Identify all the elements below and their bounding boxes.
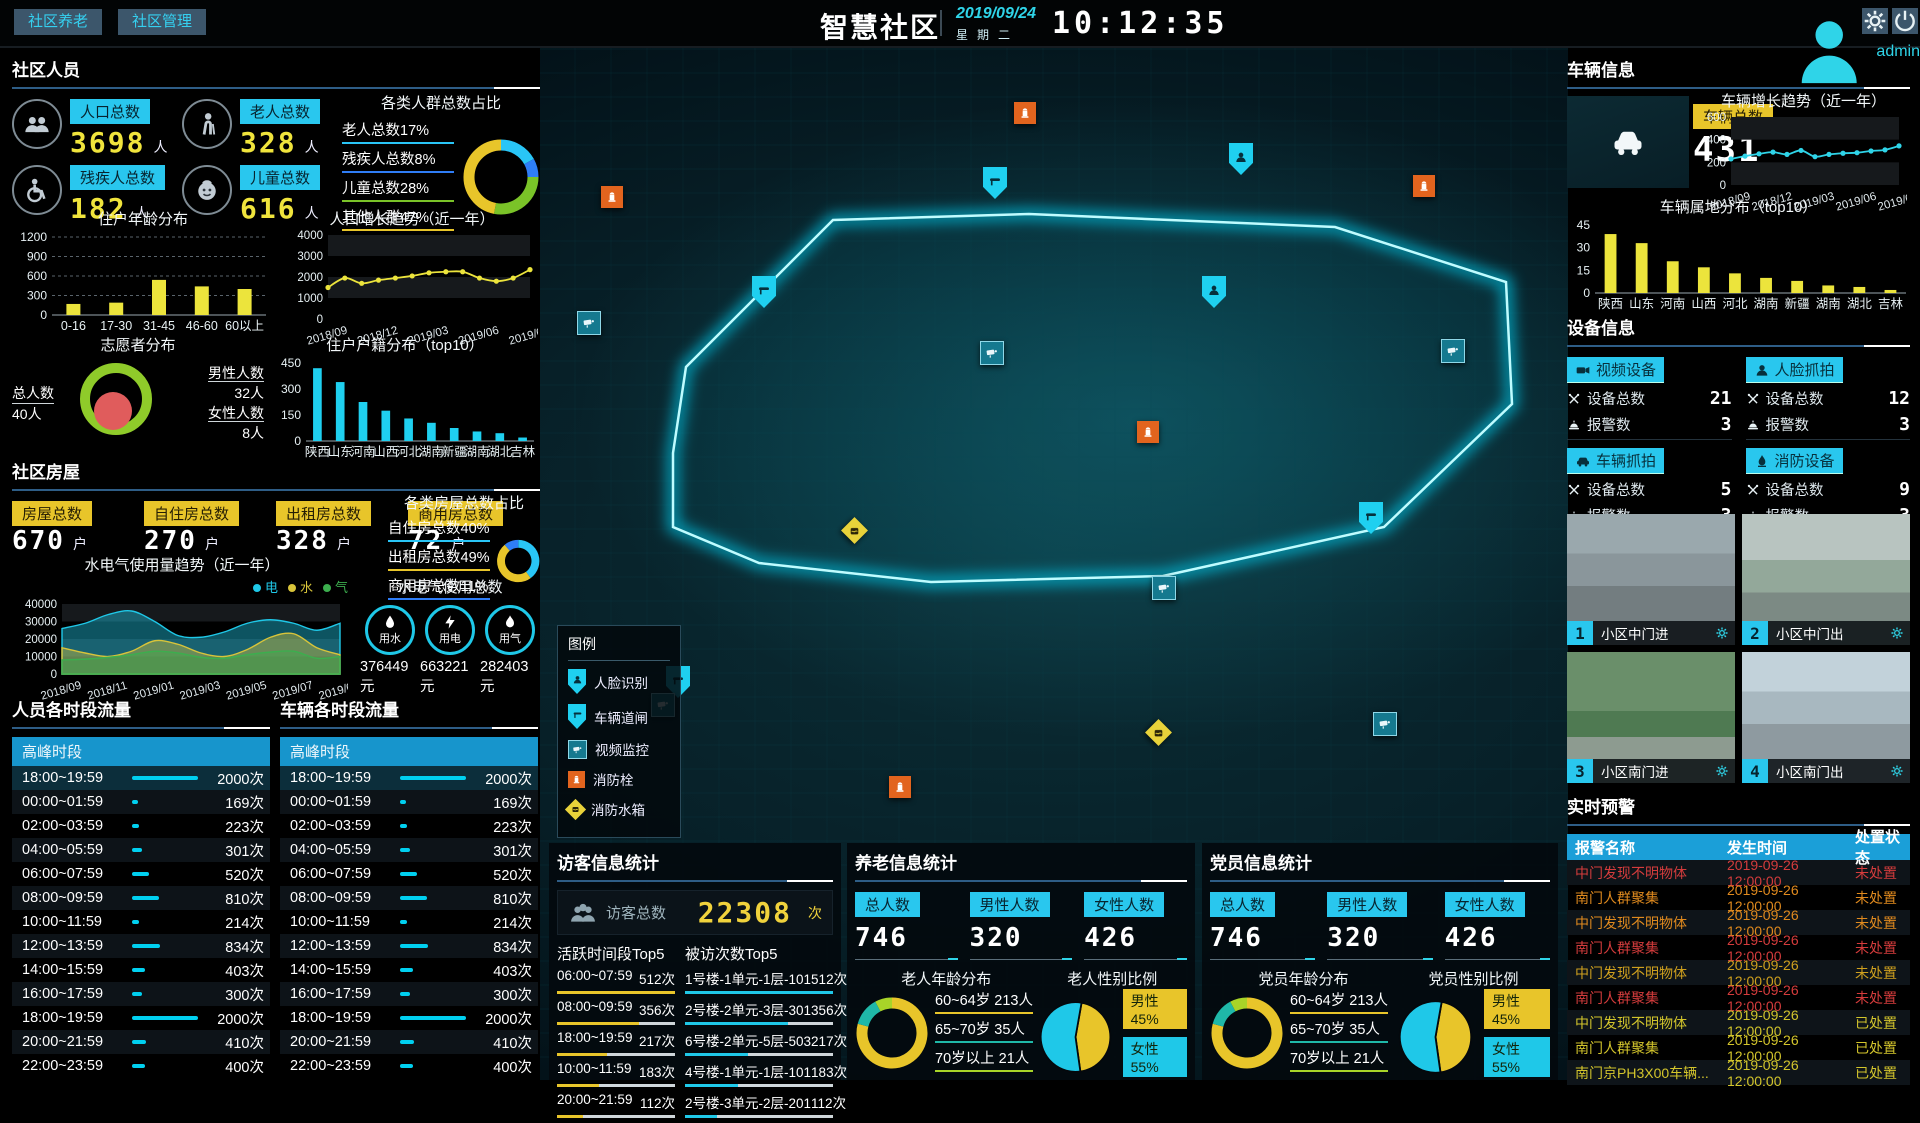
panel-title: 车辆各时段流量 (280, 696, 538, 729)
flow-table: 18:00~19:592000次00:00~01:59169次02:00~03:… (280, 766, 538, 1078)
svg-text:河北: 河北 (1722, 297, 1748, 311)
settings-button[interactable] (1862, 8, 1888, 34)
tab-community-manage[interactable]: 社区管理 (118, 9, 206, 35)
donut-label: 自住房总数40% (388, 517, 490, 542)
flow-row: 00:00~01:59169次 (280, 790, 538, 814)
video-icon (1575, 362, 1591, 378)
svg-text:河南: 河南 (350, 444, 375, 459)
svg-text:新疆: 新疆 (442, 444, 467, 459)
wrench-icon (1567, 483, 1581, 497)
legend-item-gate: 车辆道闸 (568, 704, 670, 729)
legend-item-face: 人脸识别 (568, 669, 670, 694)
svg-text:900: 900 (27, 250, 47, 264)
panel-title: 养老信息统计 (855, 849, 1187, 882)
stat-label: 自住房总数 (144, 501, 239, 526)
flame2-icon (1754, 453, 1770, 469)
chart-title: 老人性别比例 (1038, 968, 1187, 989)
top5-item: 6号楼-2单元-5层-503217次 (685, 1030, 833, 1056)
chart-title: 党员年龄分布 (1210, 968, 1397, 989)
camera-bar: 3 小区南门进 (1567, 759, 1735, 783)
legend-series-电: 电 (253, 577, 278, 596)
svg-text:0-16: 0-16 (61, 319, 86, 333)
map-marker-video[interactable] (577, 311, 601, 335)
panel-title: 访客信息统计 (557, 849, 833, 882)
household-origin-chart: 0150300450陕西山东河南山西河北湖南新疆湖南湖北吉林 (270, 355, 538, 461)
svg-text:60以上: 60以上 (225, 319, 264, 333)
vehicle-origin-chart: 0153045陕西山东河南山西河北湖南新疆湖南湖北吉林 (1567, 217, 1910, 313)
flow-row: 20:00~21:59410次 (12, 1030, 270, 1054)
page-title: 智慧社区 (820, 6, 940, 46)
age-distribution-chart: 030060090012000-1617-3031-4546-6060以上 (12, 229, 270, 335)
tank-icon (565, 798, 586, 819)
map-marker-video[interactable] (1152, 576, 1176, 600)
camera-bar: 2 小区中门出 (1742, 621, 1910, 645)
svg-text:0: 0 (317, 314, 323, 326)
stat-label: 人口总数 (70, 99, 150, 124)
flow-row: 02:00~03:59223次 (280, 814, 538, 838)
elder-gender-pie (1038, 995, 1113, 1079)
flow-row: 00:00~01:59169次 (12, 790, 270, 814)
flow-row: 22:00~23:59400次 (280, 1054, 538, 1078)
svg-text:15: 15 (1577, 263, 1591, 277)
svg-text:河南: 河南 (1660, 296, 1685, 311)
stat-label: 男性人数 (970, 892, 1050, 917)
panel-title: 党员信息统计 (1210, 849, 1550, 882)
utility-value: 282403元 (480, 659, 540, 696)
flow-row: 18:00~19:592000次 (12, 1006, 270, 1030)
visitors-icon (568, 900, 598, 926)
wrench-icon (1746, 392, 1760, 406)
house-stat: 自住房总数 270户 (144, 501, 264, 556)
flame-icon: 用气 (485, 605, 535, 655)
svg-text:0: 0 (51, 669, 57, 681)
camera-number: 3 (1567, 759, 1593, 783)
stat-label: 女性人数 (1084, 892, 1164, 917)
faceb-icon (1754, 362, 1770, 378)
elder-age-donut (855, 996, 929, 1070)
flow-row: 04:00~05:59301次 (280, 838, 538, 862)
map-marker-hydrant[interactable] (601, 186, 623, 208)
flow-row: 18:00~19:592000次 (12, 766, 270, 790)
stat-label: 儿童总数 (240, 165, 320, 190)
donut-label: 60~64岁 213人 (935, 989, 1033, 1014)
flow-row: 22:00~23:59400次 (12, 1054, 270, 1078)
camera-feed-3[interactable]: 3 小区南门进 (1567, 652, 1735, 783)
svg-text:吉林: 吉林 (1878, 297, 1904, 311)
map-marker-video[interactable] (1373, 712, 1397, 736)
utility-total-water: 用水 376449元 (360, 605, 420, 696)
flow-row: 10:00~11:59214次 (280, 910, 538, 934)
svg-text:4000: 4000 (297, 230, 323, 242)
svg-text:450: 450 (281, 356, 301, 370)
panel-device-info: 设备信息 视频设备 设备总数21 报警数3人脸抓拍 设备总数12 报警数3车辆抓… (1567, 314, 1910, 531)
visitor-total-value: 22308 (698, 896, 792, 929)
chart-title: 住户户籍分布（top10） (270, 334, 540, 355)
gear-icon (1862, 8, 1888, 34)
donut-label: 70岁以上 21人 (935, 1047, 1033, 1072)
people-stat-elder: 老人总数 328人 (182, 99, 342, 159)
logout-button[interactable] (1892, 8, 1918, 34)
map-marker-hydrant[interactable] (1014, 102, 1036, 124)
stat-label: 总人数 (1210, 892, 1275, 917)
device-label: 人脸抓拍 (1746, 357, 1843, 383)
svg-text:1200: 1200 (20, 230, 47, 244)
camera-bar: 1 小区中门进 (1567, 621, 1735, 645)
svg-text:湖北: 湖北 (1847, 296, 1873, 311)
legend-item-tank: 消防水箱 (568, 799, 670, 819)
visitor-total: 访客总数 22308 次 (557, 890, 833, 935)
camera-label: 小区南门进 (1601, 761, 1715, 781)
header-divider (940, 10, 942, 36)
stat-label: 女性人数 (1445, 892, 1525, 917)
party-age-donut (1210, 996, 1284, 1070)
svg-text:30000: 30000 (25, 617, 57, 629)
volunteer-total-label: 总人数 (12, 383, 54, 404)
top5-title: 被访次数Top5 (685, 943, 833, 964)
top5-item: 2号楼-2单元-3层-301356次 (685, 999, 833, 1025)
camera-label: 小区南门出 (1776, 761, 1890, 781)
camera-number: 1 (1567, 621, 1593, 645)
people-stats: 人口总数 3698人 老人总数 328人 残疾人总数 182人 儿童总数 616… (12, 99, 342, 225)
top-header: 社区养老 社区管理 智慧社区 2019/09/24 星期二 10:12:35 a… (0, 0, 1920, 48)
panel-vehicle-flow: 车辆各时段流量 高峰时段 18:00~19:592000次00:00~01:59… (280, 696, 538, 1078)
stat-cell: 总人数746 (1210, 892, 1315, 960)
svg-text:300: 300 (27, 289, 47, 303)
flow-row: 04:00~05:59301次 (12, 838, 270, 862)
panel-title: 社区人员 (12, 56, 540, 89)
svg-text:湖南: 湖南 (1754, 296, 1779, 311)
utility-value: 663221元 (420, 659, 480, 696)
water-icon: 用水 (365, 605, 415, 655)
svg-text:3000: 3000 (297, 251, 323, 263)
donut-label: 70岁以上 21人 (1290, 1047, 1388, 1072)
panel-vehicle-info: 车辆信息 车辆总数 431 车辆增长趋势（近一年） 02004006002018… (1567, 56, 1910, 308)
visitor-total-label: 访客总数 (606, 902, 690, 923)
device-card-faceb: 人脸抓拍 设备总数12 报警数3 (1746, 357, 1911, 440)
chart-title: 车辆属地分布（top10） (1567, 196, 1910, 217)
panel-elderly-stats: 养老信息统计 总人数746男性人数320女性人数426 老人年龄分布 60~64… (847, 843, 1195, 1080)
people-stat-crowd: 人口总数 3698人 (12, 99, 172, 159)
map-marker-hydrant[interactable] (1137, 421, 1159, 443)
svg-text:45: 45 (1577, 218, 1591, 232)
map-marker-video[interactable] (1441, 339, 1465, 363)
svg-text:31-45: 31-45 (143, 319, 175, 333)
svg-text:40000: 40000 (25, 599, 57, 611)
utility-total-flame: 用气 282403元 (480, 605, 540, 696)
gate-icon (568, 704, 586, 729)
svg-text:1000: 1000 (297, 293, 323, 305)
party-gender-pie (1397, 995, 1474, 1079)
chart-title: 党员性别比例 (1397, 968, 1550, 989)
panel-community-people: 社区人员 人口总数 3698人 老人总数 328人 残疾人总数 182人 儿童总… (12, 56, 540, 225)
vehicle-total-card (1567, 96, 1689, 188)
map-marker-video[interactable] (980, 341, 1004, 365)
device-label: 消防设备 (1746, 448, 1843, 474)
gender-badge: 女性55% (1123, 1037, 1187, 1085)
alerts-table: 报警名称发生时间处置状态 中门发现不明物体2019-09-26 12:00:00… (1567, 834, 1910, 1085)
svg-text:400: 400 (1707, 135, 1726, 147)
utilities-trend-chart: 0100002000030000400002018/092018/112019/… (12, 598, 348, 700)
alert-row[interactable]: 南门京PH3X00车辆...2019-09-26 12:00:00已处置 (1567, 1060, 1910, 1085)
panel-community-house: 社区房屋 房屋总数 670户自住房总数 270户出租房总数 328户商用房总数 … (12, 458, 540, 556)
svg-text:0: 0 (294, 434, 301, 448)
top5-item: 10:00~11:59183次 (557, 1061, 675, 1087)
map-legend: 图例 人脸识别车辆道闸视频监控消防栓消防水箱 (557, 625, 681, 838)
svg-text:湖北: 湖北 (487, 444, 513, 459)
alarm-icon (1746, 418, 1760, 432)
top5-item: 08:00~09:59356次 (557, 999, 675, 1025)
camera-number: 4 (1742, 759, 1768, 783)
utility-total-bolt: 用电 663221元 (420, 605, 480, 696)
legend-title: 图例 (568, 634, 670, 661)
camera-bar: 4 小区南门出 (1742, 759, 1910, 783)
legend-series-水: 水 (288, 577, 313, 596)
flow-table: 18:00~19:592000次00:00~01:59169次02:00~03:… (12, 766, 270, 1078)
camera-feed-1[interactable]: 1 小区中门进 (1567, 514, 1735, 645)
wrench-icon (1567, 392, 1581, 406)
donut-label: 60~64岁 213人 (1290, 989, 1388, 1014)
panel-title: 社区房屋 (12, 458, 540, 491)
svg-text:陕西: 陕西 (1598, 296, 1623, 311)
gender-badge: 男性45% (1123, 989, 1187, 1037)
svg-text:20000: 20000 (25, 634, 57, 646)
camera-feed-4[interactable]: 4 小区南门出 (1742, 652, 1910, 783)
elder-icon (182, 99, 232, 149)
donut-label: 儿童总数28% (342, 177, 454, 202)
flow-row: 06:00~07:59520次 (12, 862, 270, 886)
camera-label: 小区中门进 (1601, 623, 1715, 643)
volunteer-male-label: 男性人数 (208, 365, 264, 382)
gender-badge: 男性45% (1484, 989, 1550, 1037)
gear-icon[interactable] (1890, 764, 1904, 778)
svg-text:山东: 山东 (328, 445, 353, 459)
flow-row: 08:00~09:59810次 (12, 886, 270, 910)
population-growth-chart: 010002000300040002018/092018/122019/0320… (284, 229, 538, 345)
user-name: admin (1876, 43, 1920, 61)
camera-number: 2 (1742, 621, 1768, 645)
stat-label: 房屋总数 (12, 501, 92, 526)
flow-row: 16:00~17:59300次 (12, 982, 270, 1006)
donut-label: 65~70岁 35人 (935, 1018, 1033, 1043)
svg-text:湖南: 湖南 (419, 444, 444, 459)
top5-item: 18:00~19:59217次 (557, 1030, 675, 1056)
alarm-icon (1567, 418, 1581, 432)
svg-text:新疆: 新疆 (1785, 296, 1810, 311)
svg-text:0: 0 (1583, 286, 1590, 300)
donut-label: 残疾人总数8% (342, 148, 454, 173)
car-icon (1601, 124, 1655, 160)
power-icon (1892, 8, 1918, 34)
legend-series-气: 气 (323, 577, 348, 596)
svg-text:陕西: 陕西 (305, 444, 330, 459)
chart-title: 志愿者分布 (12, 334, 264, 355)
volunteer-female-label: 女性人数 (208, 405, 264, 422)
camera-wall: 1 小区中门进 2 小区中门出 3 小区南门进 4 小区南门出 (1567, 514, 1910, 783)
chart-title: 水电气使用总数 (360, 576, 540, 597)
panel-visitor-stats: 访客信息统计 访客总数 22308 次 活跃时间段Top5 06:00~07:5… (549, 843, 841, 1080)
svg-text:600: 600 (1707, 112, 1726, 124)
chart-title: 住户年龄分布 (12, 208, 274, 229)
svg-text:150: 150 (281, 408, 301, 422)
flow-row: 16:00~17:59300次 (280, 982, 538, 1006)
donut-label: 65~70岁 35人 (1290, 1018, 1388, 1043)
flow-row: 12:00~13:59834次 (12, 934, 270, 958)
device-label: 车辆抓拍 (1567, 448, 1664, 474)
flow-row: 14:00~15:59403次 (12, 958, 270, 982)
top5-item: 4号楼-1单元-1层-101183次 (685, 1061, 833, 1087)
map-marker-hydrant[interactable] (1413, 175, 1435, 197)
svg-text:300: 300 (281, 382, 301, 396)
bolt-icon: 用电 (425, 605, 475, 655)
svg-text:17-30: 17-30 (100, 319, 132, 333)
flow-row: 10:00~11:59214次 (12, 910, 270, 934)
flow-row: 20:00~21:59410次 (280, 1030, 538, 1054)
user-icon (1788, 11, 1870, 93)
volunteer-rings (72, 359, 160, 447)
device-card-video: 视频设备 设备总数21 报警数3 (1567, 357, 1732, 440)
utility-value: 376449元 (360, 659, 420, 696)
header-weekday: 星期二 (956, 26, 1019, 43)
device-label: 视频设备 (1567, 357, 1664, 383)
car-icon (1575, 453, 1591, 469)
camera-label: 小区中门出 (1776, 623, 1890, 643)
panel-title: 人员各时段流量 (12, 696, 270, 729)
top5-item: 1号楼-1单元-1层-101512次 (685, 968, 833, 994)
wrench-icon (1746, 483, 1760, 497)
svg-text:10000: 10000 (25, 652, 57, 664)
video-icon (568, 740, 587, 759)
legend-item-hydrant: 消防栓 (568, 769, 670, 789)
chart-title: 各类人群总数占比 (342, 92, 540, 113)
flow-row: 12:00~13:59834次 (280, 934, 538, 958)
top5-item: 20:00~21:59112次 (557, 1092, 675, 1118)
house-stat: 房屋总数 670户 (12, 501, 132, 556)
house-stat: 出租房总数 328户 (276, 501, 396, 556)
flow-row: 02:00~03:59223次 (12, 814, 270, 838)
donut-label: 出租房总数49% (388, 546, 490, 571)
stat-cell: 女性人数426 (1445, 892, 1550, 960)
tab-community-elderly[interactable]: 社区养老 (14, 9, 102, 35)
svg-text:30: 30 (1577, 241, 1591, 255)
top5-item: 06:00~07:59512次 (557, 968, 675, 994)
crowd-ratio-donut (462, 138, 540, 216)
stat-cell: 男性人数320 (970, 892, 1073, 960)
stat-cell: 总人数746 (855, 892, 958, 960)
panel-title: 设备信息 (1567, 314, 1910, 347)
top5-item: 2号楼-3单元-2层-201112次 (685, 1092, 833, 1118)
svg-text:山西: 山西 (373, 445, 398, 459)
stat-label: 老人总数 (240, 99, 320, 124)
header-clock: 10:12:35 (1052, 6, 1229, 41)
stat-cell: 男性人数320 (1327, 892, 1432, 960)
svg-text:0: 0 (1720, 180, 1726, 192)
camera-feed-2[interactable]: 2 小区中门出 (1742, 514, 1910, 645)
panel-people-flow: 人员各时段流量 高峰时段 18:00~19:592000次00:00~01:59… (12, 696, 270, 1078)
gear-icon[interactable] (1890, 626, 1904, 640)
svg-text:吉林: 吉林 (510, 445, 536, 459)
header-date: 2019/09/24 (956, 5, 1036, 23)
flow-row: 18:00~19:592000次 (280, 1006, 538, 1030)
visitor-total-unit: 次 (808, 903, 822, 923)
chart-title: 各类房屋总数占比 (388, 492, 540, 513)
hydrant-icon (568, 771, 585, 788)
gear-icon[interactable] (1715, 626, 1729, 640)
stat-label: 男性人数 (1327, 892, 1407, 917)
panel-title: 实时预警 (1567, 793, 1910, 826)
gear-icon[interactable] (1715, 764, 1729, 778)
volunteer-total: 40人 (12, 406, 42, 422)
flow-row: 14:00~15:59403次 (280, 958, 538, 982)
svg-text:600: 600 (27, 269, 47, 283)
flow-row: 18:00~19:592000次 (280, 766, 538, 790)
gender-badge: 女性55% (1484, 1037, 1550, 1085)
panel-alerts: 实时预警 报警名称发生时间处置状态 中门发现不明物体2019-09-26 12:… (1567, 793, 1910, 1085)
chart-title: 水电气使用量趋势（近一年） (12, 554, 352, 575)
svg-text:山西: 山西 (1691, 297, 1716, 311)
donut-label: 老人总数17% (342, 119, 454, 144)
svg-text:2000: 2000 (297, 272, 323, 284)
stat-label: 残疾人总数 (70, 165, 165, 190)
volunteer-male: 32人 (234, 385, 264, 401)
flow-header: 高峰时段 (12, 737, 270, 766)
svg-text:山东: 山东 (1629, 297, 1654, 311)
map-marker-hydrant[interactable] (889, 776, 911, 798)
svg-text:200: 200 (1707, 157, 1726, 169)
flow-row: 06:00~07:59520次 (280, 862, 538, 886)
svg-text:湖南: 湖南 (464, 444, 489, 459)
chart-title: 老人年龄分布 (855, 968, 1038, 989)
panel-party-stats: 党员信息统计 总人数746男性人数320女性人数426 党员年龄分布 60~64… (1202, 843, 1558, 1080)
stat-label: 出租房总数 (276, 501, 371, 526)
legend-item-video: 视频监控 (568, 739, 670, 759)
flow-row: 08:00~09:59810次 (280, 886, 538, 910)
svg-text:0: 0 (40, 308, 47, 322)
svg-text:46-60: 46-60 (186, 319, 218, 333)
volunteer-female: 8人 (242, 425, 264, 441)
svg-text:湖南: 湖南 (1816, 296, 1841, 311)
stat-label: 总人数 (855, 892, 920, 917)
stat-cell: 女性人数426 (1084, 892, 1187, 960)
chart-title: 人口增长趋势（近一年） (284, 208, 540, 229)
crowd-icon (12, 99, 62, 149)
face-icon (568, 669, 586, 694)
flow-header: 高峰时段 (280, 737, 538, 766)
svg-text:河北: 河北 (396, 445, 422, 459)
top5-title: 活跃时间段Top5 (557, 943, 675, 964)
